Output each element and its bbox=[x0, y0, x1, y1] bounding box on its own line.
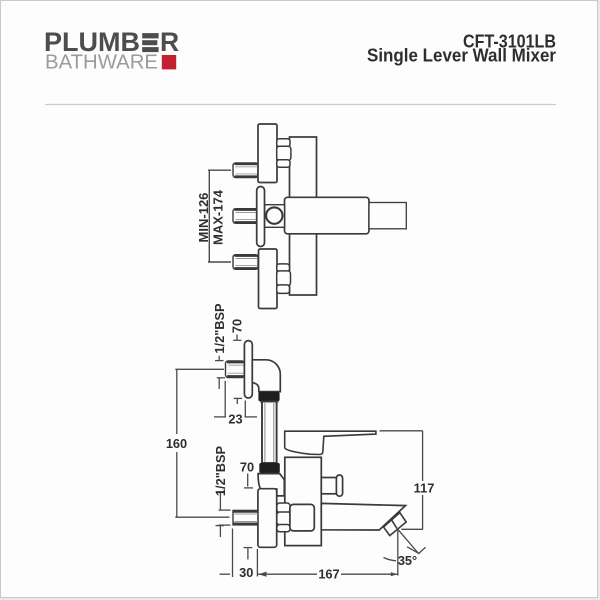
svg-text:BATHWARE: BATHWARE bbox=[45, 52, 158, 74]
svg-text:Single Lever Wall Mixer: Single Lever Wall Mixer bbox=[367, 45, 556, 66]
svg-text:35°: 35° bbox=[398, 553, 417, 568]
svg-text:70: 70 bbox=[229, 319, 244, 333]
svg-text:23: 23 bbox=[228, 412, 242, 427]
svg-text:117: 117 bbox=[414, 481, 435, 496]
svg-text:30: 30 bbox=[239, 565, 253, 580]
svg-text:70: 70 bbox=[240, 460, 254, 475]
svg-text:160: 160 bbox=[166, 436, 187, 451]
svg-text:MIN-126: MIN-126 bbox=[196, 193, 211, 243]
svg-text:1/2"BSP: 1/2"BSP bbox=[213, 445, 228, 496]
svg-text:1/2"BSP: 1/2"BSP bbox=[212, 303, 227, 354]
svg-text:167: 167 bbox=[318, 567, 339, 582]
svg-text:R: R bbox=[160, 27, 179, 57]
svg-text:MAX-174: MAX-174 bbox=[210, 189, 225, 245]
